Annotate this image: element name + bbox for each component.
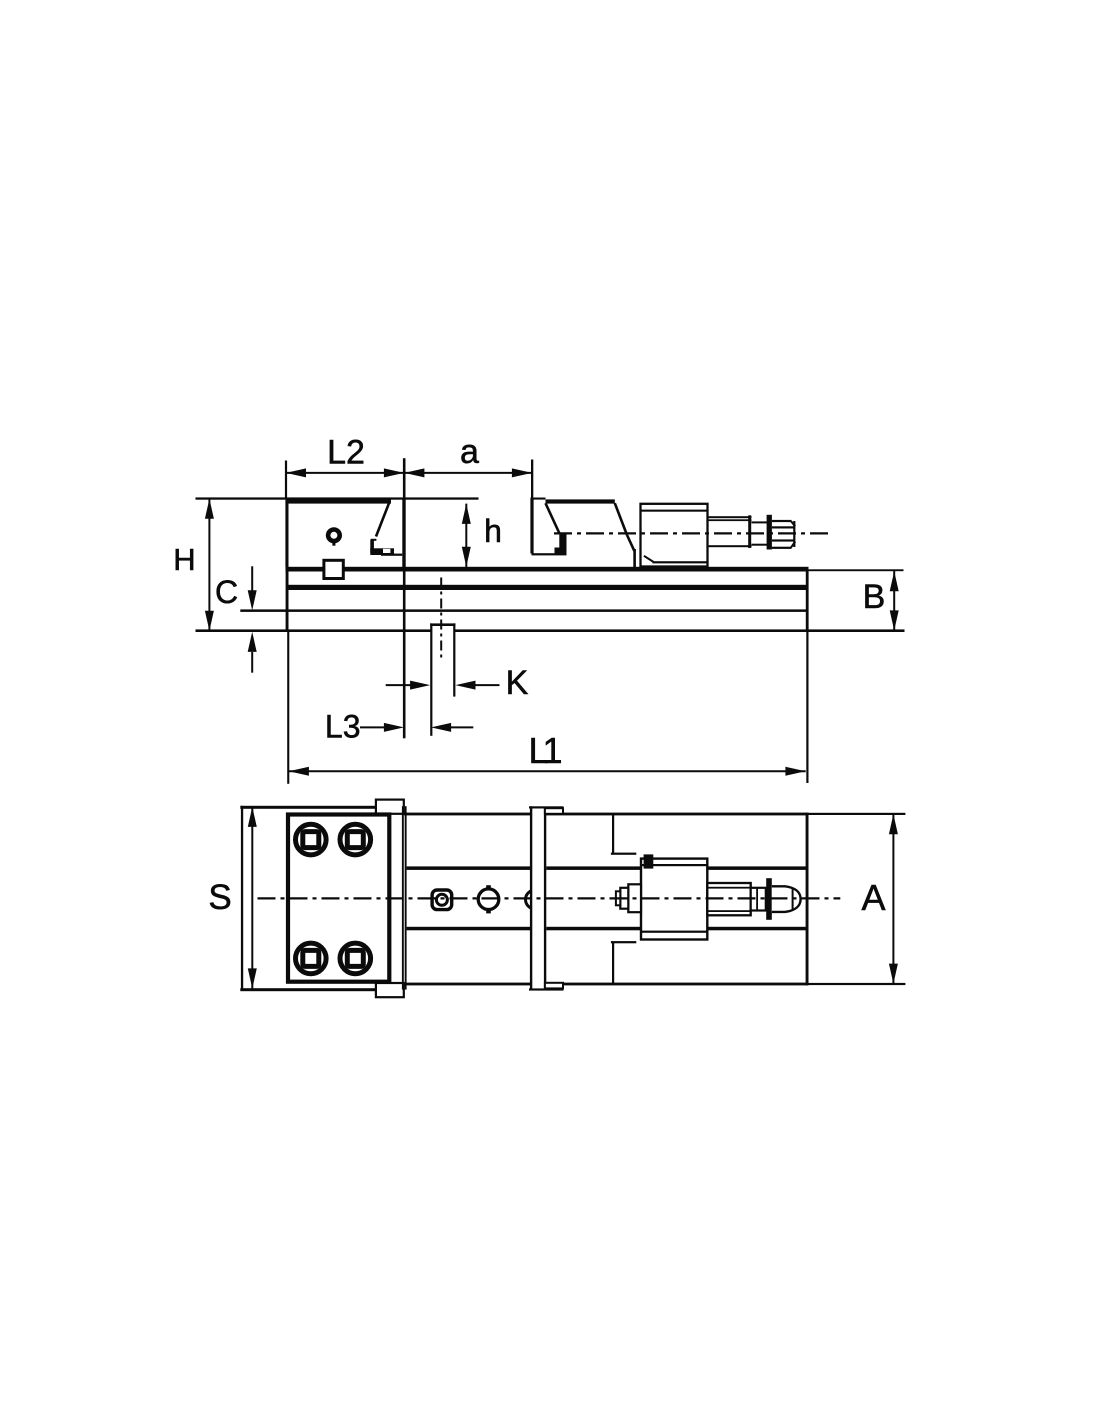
svg-text:A: A	[861, 877, 885, 918]
svg-text:a: a	[460, 433, 479, 471]
svg-text:K: K	[506, 664, 529, 702]
svg-text:B: B	[863, 578, 886, 616]
svg-text:C: C	[215, 574, 238, 610]
svg-text:h: h	[484, 513, 502, 549]
svg-text:H: H	[173, 542, 195, 577]
svg-text:S: S	[208, 878, 231, 917]
svg-text:L3: L3	[325, 709, 361, 745]
svg-text:L2: L2	[327, 434, 365, 472]
